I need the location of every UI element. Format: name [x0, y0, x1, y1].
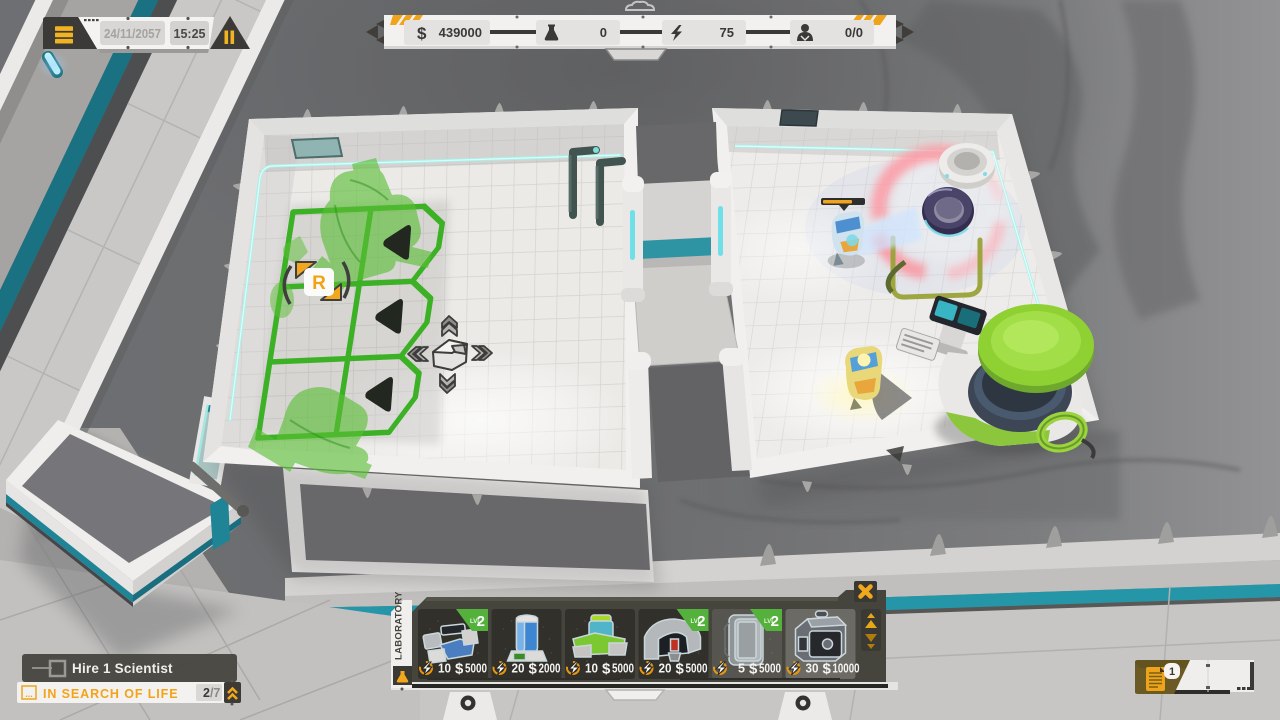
svg-text:0/0: 0/0	[845, 25, 863, 40]
svg-text:IN SEARCH OF LIFE: IN SEARCH OF LIFE	[43, 687, 178, 701]
svg-text:5: 5	[738, 662, 745, 676]
svg-text:LABORATORY: LABORATORY	[394, 591, 405, 660]
svg-text:$: $	[455, 661, 464, 678]
svg-text:10: 10	[438, 662, 451, 676]
svg-text:15:25: 15:25	[174, 26, 206, 41]
svg-text:439000: 439000	[439, 25, 482, 40]
svg-text:0: 0	[600, 25, 607, 40]
svg-text:5000: 5000	[686, 662, 708, 676]
svg-text:2: 2	[771, 613, 779, 630]
svg-text:5000: 5000	[465, 662, 487, 676]
svg-text:10: 10	[585, 662, 598, 676]
svg-text:$: $	[749, 661, 758, 678]
svg-text:5000: 5000	[612, 662, 634, 676]
svg-text:Hire 1 Scientist: Hire 1 Scientist	[72, 661, 173, 676]
svg-text:20: 20	[659, 662, 672, 676]
svg-text:...: ...	[25, 689, 33, 699]
svg-text:$: $	[529, 661, 538, 678]
svg-text:2/7: 2/7	[203, 686, 220, 700]
svg-text:5000: 5000	[759, 662, 781, 676]
svg-text:$: $	[676, 661, 685, 678]
svg-text:2: 2	[697, 613, 705, 630]
svg-text:24/11/2057: 24/11/2057	[104, 26, 161, 41]
svg-text:R: R	[312, 273, 326, 294]
svg-text:75: 75	[720, 25, 734, 40]
svg-text:10000: 10000	[833, 662, 860, 676]
svg-text:20: 20	[512, 662, 525, 676]
svg-text:2: 2	[477, 613, 485, 630]
svg-text:30: 30	[806, 662, 819, 676]
svg-text:$: $	[417, 24, 427, 43]
svg-text:$: $	[602, 661, 611, 678]
svg-text:$: $	[823, 661, 832, 678]
svg-text:2000: 2000	[539, 662, 561, 676]
svg-text:1: 1	[1169, 666, 1175, 678]
